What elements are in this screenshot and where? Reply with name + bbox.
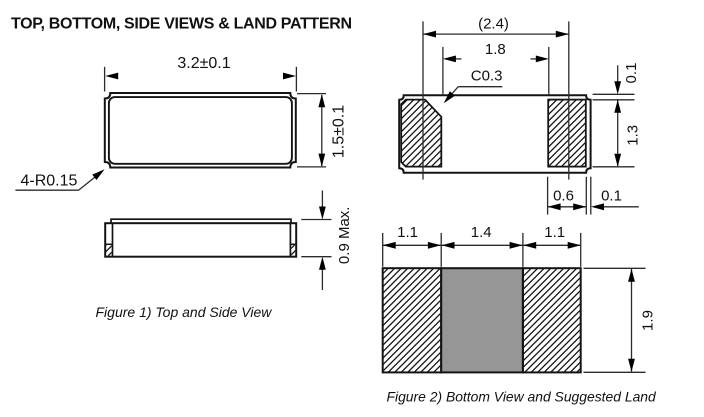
svg-text:Figure 1) Top and Side View: Figure 1) Top and Side View <box>96 304 273 320</box>
svg-text:4-R0.15: 4-R0.15 <box>21 172 78 189</box>
svg-text:0.9 Max.: 0.9 Max. <box>336 207 353 265</box>
svg-text:1.5±0.1: 1.5±0.1 <box>331 105 348 158</box>
svg-text:(2.4): (2.4) <box>478 15 509 32</box>
svg-text:1.1: 1.1 <box>544 224 565 241</box>
svg-text:1.8: 1.8 <box>485 41 506 58</box>
svg-text:3.2±0.1: 3.2±0.1 <box>177 55 230 72</box>
svg-text:0.6: 0.6 <box>553 188 574 205</box>
svg-text:0.1: 0.1 <box>623 63 640 84</box>
svg-text:C0.3: C0.3 <box>471 68 503 85</box>
svg-text:TOP, BOTTOM, SIDE VIEWS & LAND: TOP, BOTTOM, SIDE VIEWS & LAND PATTERN <box>11 16 352 33</box>
svg-text:1.3: 1.3 <box>625 125 642 146</box>
svg-text:1.4: 1.4 <box>471 224 492 241</box>
svg-text:1.9: 1.9 <box>640 310 657 331</box>
svg-text:1.1: 1.1 <box>397 224 418 241</box>
svg-text:0.1: 0.1 <box>601 188 622 205</box>
svg-text:Figure 2) Bottom View and Sug: Figure 2) Bottom View and Suggested Land <box>387 388 658 404</box>
